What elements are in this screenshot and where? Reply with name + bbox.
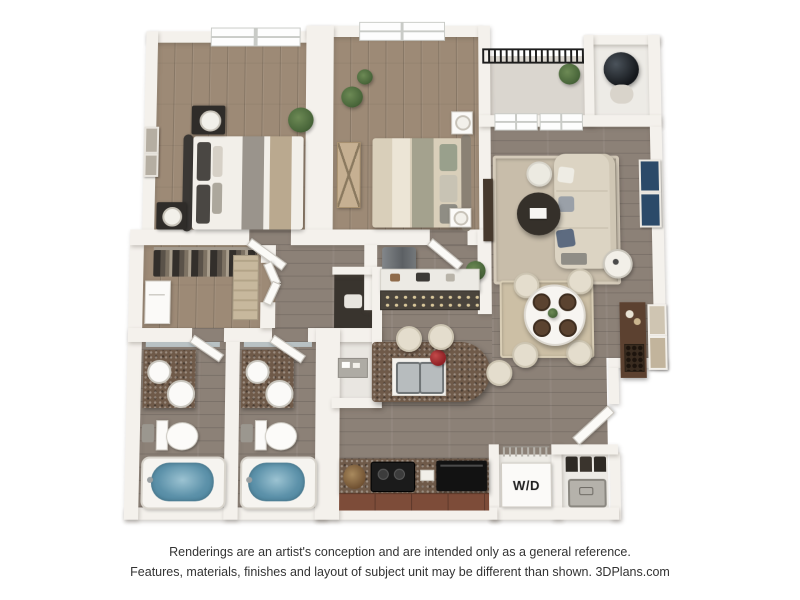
- wall: [223, 342, 240, 520]
- floorplan-page: W/D: [0, 0, 800, 600]
- bedroom-1-window: [211, 28, 301, 47]
- bed-1-pillow: [196, 185, 210, 224]
- disclaimer-line-1: Renderings are an artist's conception an…: [0, 542, 800, 562]
- wall: [648, 35, 662, 127]
- balcony-plant: [559, 64, 581, 85]
- wall: [551, 444, 618, 454]
- wall-art-frame: [144, 127, 159, 154]
- bed-2-pillow: [439, 144, 457, 171]
- brand-name: 3DPlans.com: [595, 565, 669, 579]
- metal-bin-handle: [579, 487, 593, 495]
- wall: [128, 328, 192, 342]
- decor-vase: [626, 310, 634, 318]
- sink-basin: [419, 362, 444, 394]
- wall: [489, 507, 619, 519]
- place-setting: [533, 319, 551, 337]
- vanity-sink: [245, 360, 269, 384]
- wall-art-frame-navy: [639, 159, 661, 192]
- closet-dresser-drawers: [149, 294, 165, 295]
- stove-burner: [394, 469, 405, 480]
- table-lamp: [454, 211, 469, 226]
- bed-2-throw-blanket: [412, 138, 434, 227]
- disclaimer-text: Renderings are an artist's conception an…: [0, 542, 800, 582]
- dining-chair: [566, 340, 592, 366]
- kitchen-cabinet-face: [339, 493, 489, 510]
- stove-burner: [378, 469, 389, 480]
- oven-handle: [440, 465, 482, 467]
- bedroom-2-plant: [357, 69, 373, 84]
- shoe-shelf: [232, 255, 259, 320]
- wine-cabinet: [380, 290, 480, 310]
- balcony-railing: [482, 48, 584, 63]
- floorplan-3d-render: W/D: [95, 16, 717, 538]
- toilet: [265, 422, 298, 450]
- bed-1-duvet-band: [269, 136, 292, 229]
- dining-chair: [512, 342, 538, 368]
- storage-basket: [580, 457, 592, 472]
- closet-dresser: [144, 281, 171, 325]
- water-heater: [603, 52, 639, 86]
- bedroom-2-window: [359, 22, 445, 41]
- living-room-window: [540, 113, 583, 130]
- bedroom-2-plant: [341, 86, 363, 107]
- vanity-sink: [265, 380, 293, 408]
- washer-dryer-label: W/D: [513, 477, 540, 492]
- sink-basin: [396, 362, 421, 394]
- wall: [224, 328, 272, 342]
- bar-stool: [396, 326, 422, 352]
- bed-1-pillow: [197, 142, 211, 181]
- washer-dryer-unit: W/D: [501, 463, 552, 508]
- pouf-ottoman: [526, 161, 552, 186]
- storage-basket: [566, 457, 578, 472]
- wall: [315, 328, 340, 520]
- sofa-cushion-seam: [557, 228, 609, 229]
- sofa-cushion-seam: [556, 191, 607, 192]
- bed-1-pillow: [212, 146, 222, 177]
- disclaimer-line-2: Features, materials, finishes and layout…: [0, 562, 800, 582]
- bathroom-bin: [142, 424, 154, 442]
- bathtub-water: [151, 463, 214, 502]
- wall: [609, 368, 620, 404]
- bed-2-duvet-band: [392, 138, 410, 227]
- wire-shelf: [503, 446, 550, 456]
- pantry-items: [353, 363, 360, 368]
- sofa-throw: [561, 253, 587, 265]
- water-heater-body: [610, 85, 634, 104]
- wall-art-frame-navy: [639, 192, 661, 227]
- bar-stool: [486, 360, 512, 386]
- bedroom-1-plant: [288, 108, 314, 133]
- counter-item-white: [420, 470, 434, 481]
- dried-arrangement: [343, 465, 365, 489]
- laundry-basket: [344, 294, 362, 308]
- bed-1-throw-blanket: [241, 136, 264, 229]
- wall: [130, 229, 249, 245]
- coffee-table-book: [530, 208, 547, 219]
- wall-art-frame-tan: [648, 336, 668, 370]
- table-lamp: [455, 115, 471, 130]
- wall: [291, 229, 430, 245]
- counter-items: [446, 274, 455, 282]
- table-centerpiece: [548, 308, 558, 318]
- media-console: [483, 179, 493, 241]
- sofa-pillow: [556, 228, 576, 248]
- storage-basket: [594, 457, 606, 472]
- pantry-items: [342, 362, 350, 368]
- tub-faucet: [246, 477, 252, 483]
- bathroom-bin: [241, 424, 253, 442]
- counter-items: [416, 273, 430, 282]
- floor-lamp-finial: [613, 259, 619, 265]
- wall-art-frame: [143, 154, 158, 177]
- wall: [260, 302, 275, 328]
- place-setting: [533, 293, 551, 311]
- place-setting: [559, 319, 577, 337]
- disclaimer-line-2-text: Features, materials, finishes and layout…: [130, 565, 592, 579]
- wine-rack: [624, 344, 645, 372]
- wall-art-frame-tan: [647, 304, 667, 336]
- fruit-bowl: [430, 350, 446, 366]
- wall: [584, 35, 595, 127]
- counter-items: [390, 274, 400, 282]
- place-setting: [558, 293, 576, 311]
- decor-vase: [634, 318, 641, 325]
- bathtub-water: [248, 463, 305, 502]
- sofa-pillow: [558, 196, 574, 212]
- living-room-window: [494, 113, 537, 130]
- bed-2-pillow: [440, 175, 458, 202]
- bar-stool: [428, 324, 454, 350]
- sofa-pillow: [557, 166, 575, 184]
- x-frame-bench: [337, 142, 361, 208]
- bed-1-pillow: [212, 183, 222, 214]
